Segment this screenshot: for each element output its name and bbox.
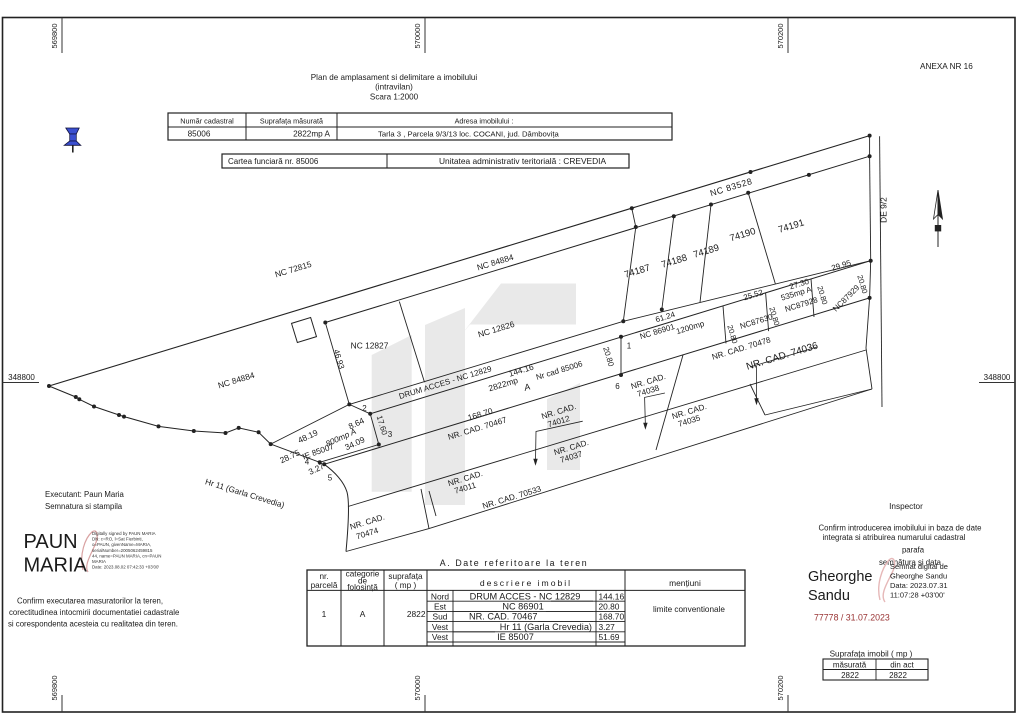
svg-text:6: 6 xyxy=(615,382,620,391)
svg-text:85006: 85006 xyxy=(188,130,211,139)
svg-text:Scara 1:2000: Scara 1:2000 xyxy=(370,93,419,102)
svg-text:mențiuni: mențiuni xyxy=(669,578,701,588)
svg-text:A. Date referitoare la ter: A. Date referitoare la teren xyxy=(440,558,588,568)
svg-text:DN: c=RO, l=Sat Fierbinti,: DN: c=RO, l=Sat Fierbinti, xyxy=(92,537,143,542)
svg-text:Unitatea administrativ teritor: Unitatea administrativ teritorială : CRE… xyxy=(439,156,607,166)
svg-text:Gheorghe Sandu: Gheorghe Sandu xyxy=(890,572,947,581)
svg-text:Hr 11 (Garla Crevedia): Hr 11 (Garla Crevedia) xyxy=(500,622,592,632)
svg-text:NC 12827: NC 12827 xyxy=(351,341,389,351)
svg-text:Executant: Paun Maria: Executant: Paun Maria xyxy=(45,490,125,499)
svg-text:Date: 2023.08.02 07:42:33 +03': Date: 2023.08.02 07:42:33 +03'00' xyxy=(92,565,159,570)
svg-text:569800: 569800 xyxy=(50,23,59,48)
svg-text:măsurată: măsurată xyxy=(833,661,867,670)
svg-text:570200: 570200 xyxy=(776,23,785,48)
svg-text:Număr cadastral: Număr cadastral xyxy=(180,117,234,126)
svg-text:parafa: parafa xyxy=(902,546,925,555)
svg-text:din act: din act xyxy=(890,661,914,670)
svg-text:20.80: 20.80 xyxy=(599,602,620,612)
svg-text:DRUM ACCES - NC 12829: DRUM ACCES - NC 12829 xyxy=(470,591,581,601)
svg-text:569800: 569800 xyxy=(50,675,59,700)
svg-text:77778 / 31.07.2023: 77778 / 31.07.2023 xyxy=(814,613,890,623)
svg-text:Vest: Vest xyxy=(432,622,449,632)
svg-text:Plan de amplasament si delimit: Plan de amplasament si delimitare a imob… xyxy=(311,73,478,82)
svg-text:Suprafața imobil ( mp ): Suprafața imobil ( mp ) xyxy=(830,650,913,659)
svg-text:Nord: Nord xyxy=(431,591,449,601)
svg-text:parcelă: parcelă xyxy=(311,581,338,590)
svg-text:si corespondenta acesteia cu r: si corespondenta acesteia cu realitatea … xyxy=(8,620,178,629)
svg-text:serialNumber=2005062459815: serialNumber=2005062459815 xyxy=(92,548,153,553)
svg-text:Tarla 3 , Parcela 9/3/13 loc.: Tarla 3 , Parcela 9/3/13 loc. COCANI, ju… xyxy=(378,130,559,139)
svg-text:Suprafața măsurată: Suprafața măsurată xyxy=(260,117,323,126)
svg-text:(intravilan): (intravilan) xyxy=(375,83,413,92)
svg-text:168.70: 168.70 xyxy=(599,612,625,622)
svg-text:Sud: Sud xyxy=(433,612,448,622)
svg-text:corectitudinea intocmirii docu: corectitudinea intocmirii documentatiei … xyxy=(9,608,179,617)
svg-text:NR. CAD. 70467: NR. CAD. 70467 xyxy=(469,612,537,622)
svg-text:folosință: folosință xyxy=(347,583,378,592)
svg-text:51.69: 51.69 xyxy=(599,632,620,642)
svg-text:limite conventionale: limite conventionale xyxy=(653,605,725,614)
svg-text:A: A xyxy=(360,609,366,619)
svg-text:44, name=PAUN MARIA, cn=PAUN: 44, name=PAUN MARIA, cn=PAUN xyxy=(92,553,161,558)
svg-text:MARIA: MARIA xyxy=(24,555,88,577)
svg-text:2822mp A: 2822mp A xyxy=(293,130,330,139)
svg-text:348800: 348800 xyxy=(984,373,1011,382)
svg-text:IE 85007: IE 85007 xyxy=(497,632,534,642)
svg-text:suprafața: suprafața xyxy=(388,572,423,581)
svg-text:570200: 570200 xyxy=(776,675,785,700)
svg-text:Confirm executarea masuratoril: Confirm executarea masuratorilor la tere… xyxy=(17,597,163,606)
svg-text:348800: 348800 xyxy=(8,373,35,382)
svg-text:Data: 2023.07.31: Data: 2023.07.31 xyxy=(890,581,948,590)
svg-text:Est: Est xyxy=(434,602,447,612)
svg-text:1: 1 xyxy=(322,609,327,619)
svg-text:2822: 2822 xyxy=(841,671,859,680)
svg-text:2822: 2822 xyxy=(889,671,907,680)
svg-text:570000: 570000 xyxy=(413,23,422,48)
svg-text:MARIA: MARIA xyxy=(92,559,106,564)
svg-text:Confirm introducerea imobilulu: Confirm introducerea imobilului in baza … xyxy=(819,524,982,533)
svg-text:nr.: nr. xyxy=(319,572,328,581)
svg-text:( mp ): ( mp ) xyxy=(395,581,417,590)
svg-text:Vest: Vest xyxy=(432,632,449,642)
svg-text:5: 5 xyxy=(328,474,333,483)
svg-text:NC 86901: NC 86901 xyxy=(502,602,543,612)
svg-text:DE 9/2: DE 9/2 xyxy=(879,197,889,223)
svg-text:144.16: 144.16 xyxy=(599,591,625,601)
svg-text:2: 2 xyxy=(362,404,367,413)
svg-text:integrata si atribuirea numaru: integrata si atribuirea numarului cadast… xyxy=(822,533,965,542)
svg-text:PAUN: PAUN xyxy=(24,531,78,553)
svg-text:Gheorghe: Gheorghe xyxy=(808,569,873,585)
svg-text:descriere imobil: descriere imobil xyxy=(480,578,572,588)
svg-text:Semnat digital de: Semnat digital de xyxy=(890,562,948,571)
svg-text:2822: 2822 xyxy=(407,609,426,619)
svg-text:Sandu: Sandu xyxy=(808,588,850,604)
svg-text:Digitally signed by PAUN MARIA: Digitally signed by PAUN MARIA xyxy=(92,531,156,536)
svg-text:o=PAUN, givenName=MARIA,: o=PAUN, givenName=MARIA, xyxy=(92,542,151,547)
svg-text:1: 1 xyxy=(627,342,632,351)
svg-text:Inspector: Inspector xyxy=(889,502,923,511)
svg-text:Semnatura si stampila: Semnatura si stampila xyxy=(45,502,123,511)
svg-text:11:07:28 +03'00': 11:07:28 +03'00' xyxy=(890,591,945,600)
svg-text:3.27: 3.27 xyxy=(599,622,616,632)
svg-text:Cartea funciară nr. 85006: Cartea funciară nr. 85006 xyxy=(228,157,319,166)
svg-text:570000: 570000 xyxy=(413,675,422,700)
svg-text:ANEXA NR 16: ANEXA NR 16 xyxy=(920,62,973,71)
svg-text:Adresa imobilului :: Adresa imobilului : xyxy=(455,117,514,126)
